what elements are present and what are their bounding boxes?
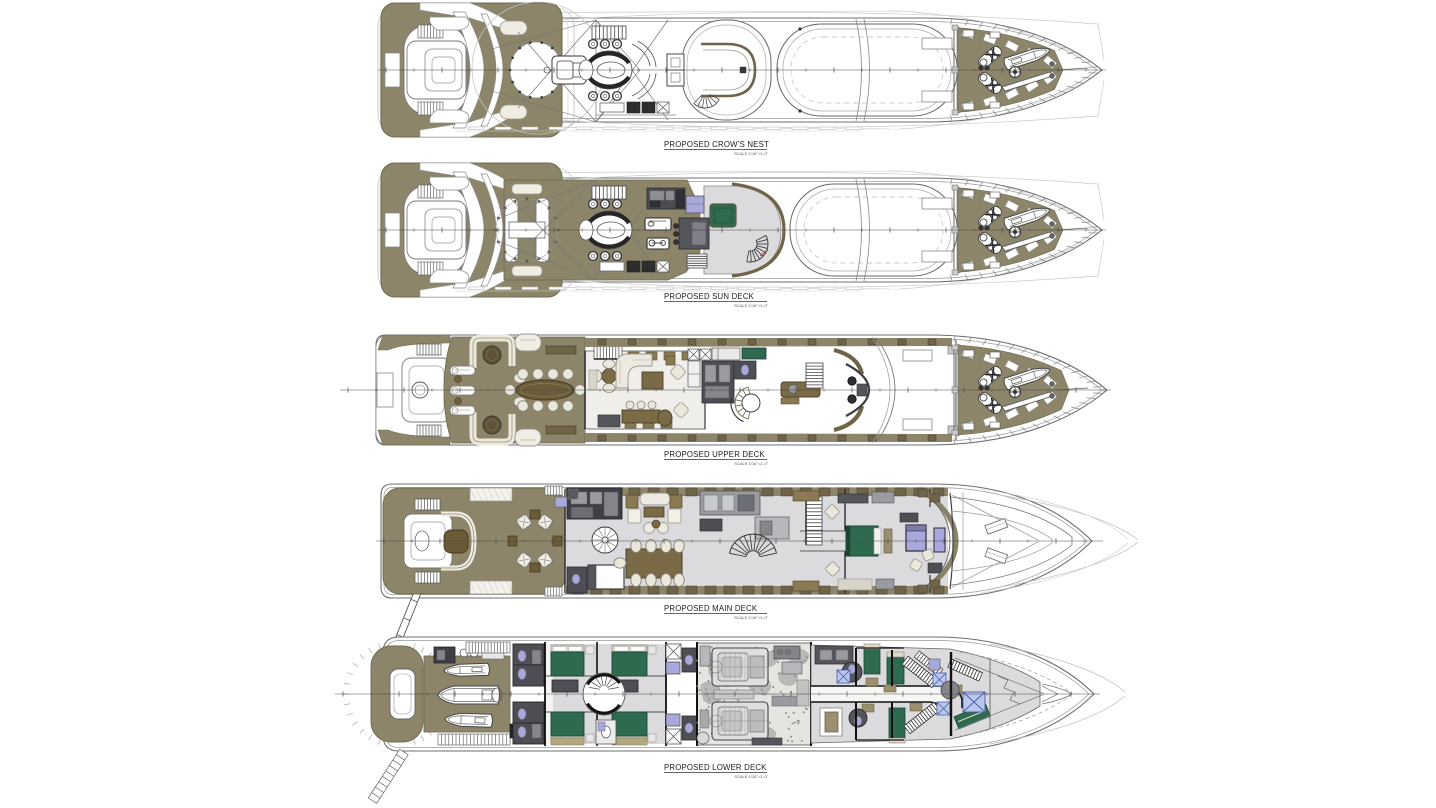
svg-text:PROPOSED CROW’S NEST: PROPOSED CROW’S NEST (664, 140, 769, 149)
svg-text:SCALE 1/16"=1'-0": SCALE 1/16"=1'-0" (734, 303, 768, 308)
svg-text:PROPOSED MAIN DECK: PROPOSED MAIN DECK (664, 604, 758, 613)
svg-text:PROPOSED SUN DECK: PROPOSED SUN DECK (664, 292, 755, 301)
svg-text:SCALE 1/16"=1'-0": SCALE 1/16"=1'-0" (734, 774, 768, 779)
svg-text:SCALE 1/16"=1'-0": SCALE 1/16"=1'-0" (734, 151, 768, 156)
svg-text:PROPOSED UPPER DECK: PROPOSED UPPER DECK (664, 450, 765, 459)
svg-text:SCALE 1/16"=1'-0": SCALE 1/16"=1'-0" (734, 461, 768, 466)
svg-text:PROPOSED LOWER DECK: PROPOSED LOWER DECK (664, 763, 767, 772)
svg-text:SCALE 1/16"=1'-0": SCALE 1/16"=1'-0" (734, 615, 768, 620)
